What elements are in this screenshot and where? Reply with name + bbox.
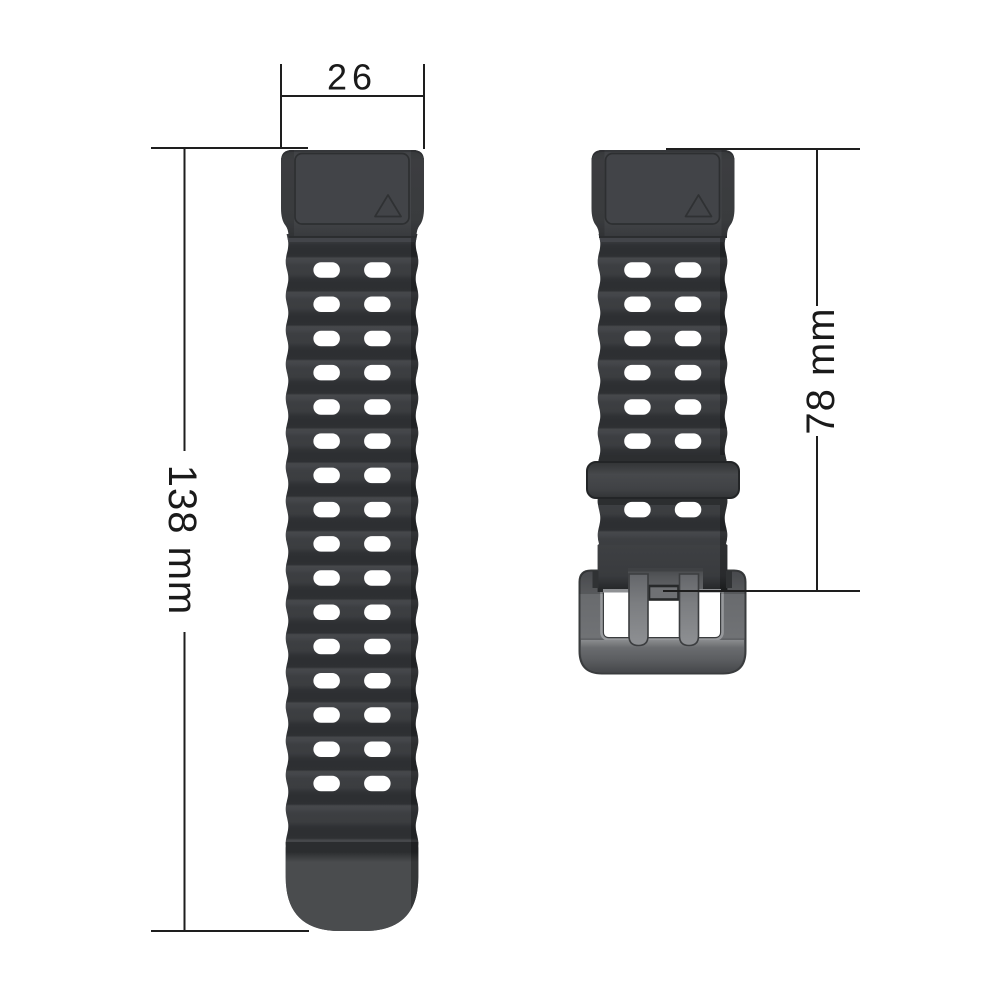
svg-text:26: 26 <box>327 57 377 98</box>
svg-text:138 mm: 138 mm <box>160 465 204 616</box>
svg-text:78 mm: 78 mm <box>799 307 843 434</box>
